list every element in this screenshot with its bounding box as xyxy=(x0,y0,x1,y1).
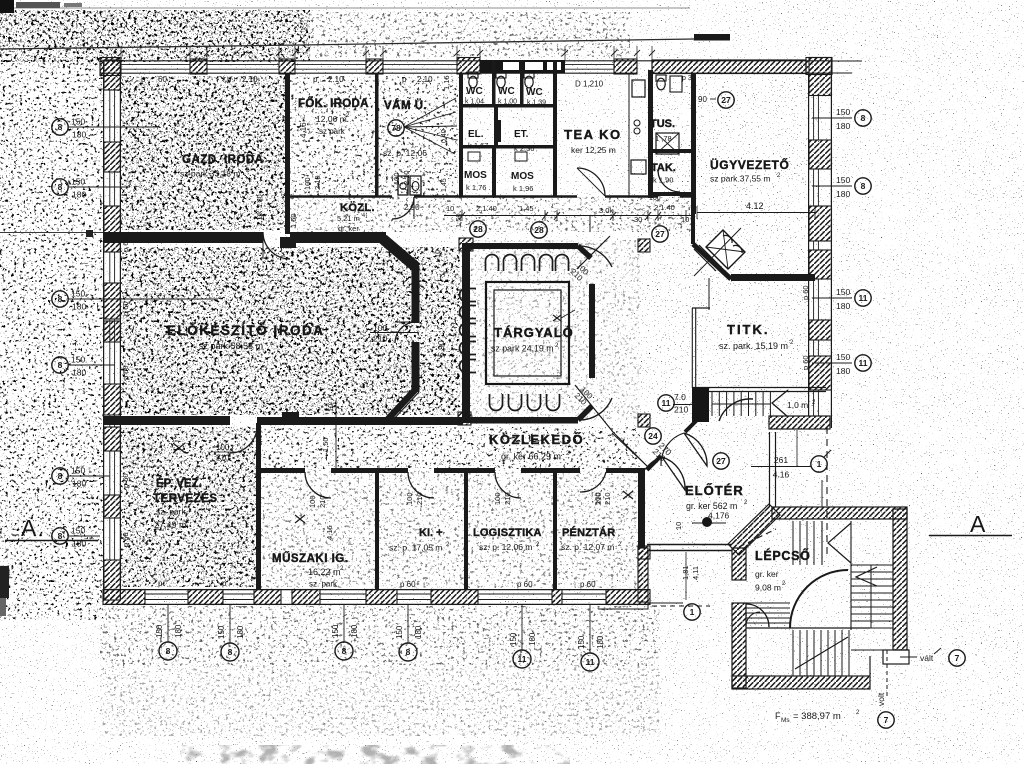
svg-text:sz. park: sz. park xyxy=(156,507,187,517)
svg-text:2,1.40: 2,1.40 xyxy=(476,204,497,213)
svg-text:10: 10 xyxy=(446,204,454,213)
svg-text:11: 11 xyxy=(662,398,671,408)
svg-text:TITK.: TITK. xyxy=(727,322,770,337)
svg-text:10: 10 xyxy=(433,250,442,258)
svg-text:180: 180 xyxy=(836,301,850,311)
svg-text:TÁRGYALÓ: TÁRGYALÓ xyxy=(494,325,574,340)
svg-text:WC: WC xyxy=(526,87,543,98)
svg-text:30: 30 xyxy=(634,215,642,224)
svg-text:sz park: sz park xyxy=(319,127,346,136)
svg-text:ELŐTÉR: ELŐTÉR xyxy=(685,483,744,498)
svg-text:150: 150 xyxy=(836,287,850,297)
svg-text:78: 78 xyxy=(391,123,401,133)
svg-text:GAZD. IRODA: GAZD. IRODA xyxy=(182,154,264,166)
svg-text:150: 150 xyxy=(836,107,850,117)
svg-text:LOGISZTIKA: LOGISZTIKA xyxy=(473,527,542,539)
svg-text:60: 60 xyxy=(158,75,167,84)
svg-text:180: 180 xyxy=(836,121,850,131)
svg-text:4,16: 4,16 xyxy=(299,122,308,138)
svg-text:150: 150 xyxy=(71,177,85,187)
svg-text:sz. p. 12,06 m: sz. p. 12,06 m xyxy=(479,542,532,552)
svg-text:27: 27 xyxy=(716,456,726,466)
svg-text:2.10: 2.10 xyxy=(328,75,344,84)
svg-text:10: 10 xyxy=(674,522,683,530)
svg-text:11: 11 xyxy=(859,358,868,368)
svg-text:210: 210 xyxy=(674,405,688,415)
svg-text:10: 10 xyxy=(433,417,442,425)
svg-text:261: 261 xyxy=(774,455,788,465)
svg-text:p: p xyxy=(402,75,407,84)
svg-text:TEA KO: TEA KO xyxy=(564,127,622,142)
svg-text:10: 10 xyxy=(326,404,335,412)
svg-text:1,45: 1,45 xyxy=(519,204,534,213)
svg-text:4,176: 4,176 xyxy=(708,511,730,521)
svg-text:2,1.40: 2,1.40 xyxy=(654,203,675,212)
svg-text:3.0k: 3.0k xyxy=(599,206,613,215)
svg-text:ÉP. VEZ.: ÉP. VEZ. xyxy=(156,477,202,490)
svg-text:100: 100 xyxy=(405,492,414,505)
svg-text:sz. park: sz. park xyxy=(309,580,338,589)
svg-text:gr. ker 66,29 m: gr. ker 66,29 m xyxy=(501,452,561,462)
svg-text:8: 8 xyxy=(228,647,233,657)
svg-text:9,08 m: 9,08 m xyxy=(755,583,781,593)
svg-text:7.0: 7.0 xyxy=(674,392,686,402)
svg-text:p 60: p 60 xyxy=(121,532,130,547)
svg-text:8: 8 xyxy=(166,646,171,656)
svg-text:ker 12,25 m: ker 12,25 m xyxy=(571,145,616,155)
svg-text:ELŐKÉSZÍTŐ IRODA: ELŐKÉSZÍTŐ IRODA xyxy=(167,323,325,338)
svg-text:100: 100 xyxy=(493,492,502,505)
svg-text:sz. p. 12,07 m: sz. p. 12,07 m xyxy=(561,542,614,552)
svg-text:28: 28 xyxy=(473,224,483,234)
svg-text:180: 180 xyxy=(72,190,86,200)
svg-text:180: 180 xyxy=(836,366,850,376)
svg-text:4: 4 xyxy=(362,213,365,219)
svg-text:MŰSZAKI IG.: MŰSZAKI IG. xyxy=(272,552,348,565)
svg-text:150: 150 xyxy=(155,624,164,638)
svg-text:k 1,00: k 1,00 xyxy=(498,99,517,106)
svg-text:11: 11 xyxy=(518,654,527,664)
svg-text:8: 8 xyxy=(58,531,63,541)
svg-text:2.10: 2.10 xyxy=(402,170,411,185)
svg-text:KÖZLEKEDŐ: KÖZLEKEDŐ xyxy=(489,432,584,447)
svg-text:150: 150 xyxy=(509,632,518,646)
svg-text:150: 150 xyxy=(395,625,404,639)
svg-text:EL.: EL. xyxy=(468,129,484,140)
svg-text:1,16: 1,16 xyxy=(442,75,451,90)
svg-text:180: 180 xyxy=(236,625,245,639)
svg-text:gr. ker 562 m: gr. ker 562 m xyxy=(686,501,737,511)
svg-text:7: 7 xyxy=(884,715,889,725)
svg-text:150: 150 xyxy=(71,289,85,299)
svg-text:16,22 m: 16,22 m xyxy=(308,567,341,577)
svg-text:7: 7 xyxy=(955,653,960,663)
svg-text:p: p xyxy=(313,75,318,84)
svg-text:180: 180 xyxy=(836,189,850,199)
svg-text:KÖZL.: KÖZL. xyxy=(340,201,375,214)
svg-text:p: p xyxy=(222,579,227,588)
svg-text:gr. ker: gr. ker xyxy=(755,569,779,579)
svg-text:MOS: MOS xyxy=(511,171,534,182)
svg-text:2.10: 2.10 xyxy=(242,75,258,84)
svg-text:1,81: 1,81 xyxy=(681,565,690,580)
svg-text:p 60: p 60 xyxy=(121,365,130,380)
svg-text:210: 210 xyxy=(373,334,387,344)
svg-text:150: 150 xyxy=(331,624,340,638)
svg-text:p 60: p 60 xyxy=(801,355,810,370)
svg-text:D 1,210: D 1,210 xyxy=(575,80,604,89)
svg-text:FŐK. IRODA: FŐK. IRODA xyxy=(298,97,369,110)
svg-text:4.12: 4.12 xyxy=(746,201,764,211)
svg-text:sz park 58,58 m: sz park 58,58 m xyxy=(199,341,263,351)
svg-text:180: 180 xyxy=(72,302,86,312)
svg-text:PÉNZTÁR: PÉNZTÁR xyxy=(562,526,615,539)
svg-text:150: 150 xyxy=(217,625,226,639)
svg-text:WC: WC xyxy=(498,86,515,97)
svg-text:TERVEZÉS: TERVEZÉS xyxy=(153,492,218,505)
svg-text:TAK.: TAK. xyxy=(651,162,676,174)
svg-text:27,49 m: 27,49 m xyxy=(154,520,187,530)
svg-text:2.90: 2.90 xyxy=(404,203,420,212)
svg-text:sz park 33,18 m: sz park 33,18 m xyxy=(180,169,240,179)
svg-text:1,50: 1,50 xyxy=(289,213,298,228)
svg-text:1.80: 1.80 xyxy=(257,194,264,208)
svg-text:LÉPCSŐ: LÉPCSŐ xyxy=(755,548,811,563)
svg-text:ET.: ET. xyxy=(514,129,529,140)
svg-text:k 1,76: k 1,76 xyxy=(466,183,486,192)
svg-text:180: 180 xyxy=(596,635,605,649)
svg-text:8: 8 xyxy=(58,122,63,132)
svg-text:p 60: p 60 xyxy=(121,237,130,252)
svg-text:100: 100 xyxy=(392,172,401,185)
svg-text:gr. ker: gr. ker xyxy=(338,224,359,233)
svg-text:8: 8 xyxy=(58,294,63,304)
svg-text:8: 8 xyxy=(58,471,63,481)
svg-text:p 30: p 30 xyxy=(682,75,696,82)
svg-text:5,90: 5,90 xyxy=(436,340,446,357)
svg-text:sz. p. 17,05 m: sz. p. 17,05 m xyxy=(389,543,442,553)
svg-text:28: 28 xyxy=(534,225,544,235)
svg-text:8: 8 xyxy=(58,360,63,370)
svg-text:150: 150 xyxy=(71,355,85,365)
svg-text:150: 150 xyxy=(577,635,586,649)
svg-text:k 1,04: k 1,04 xyxy=(465,99,484,106)
svg-text:210: 210 xyxy=(503,492,512,505)
svg-text:k 1,67: k 1,67 xyxy=(468,141,488,150)
svg-text:180: 180 xyxy=(350,624,359,638)
svg-text:sz. p. 12,06: sz. p. 12,06 xyxy=(383,148,427,158)
svg-text:p 60: p 60 xyxy=(801,285,810,300)
svg-text:8: 8 xyxy=(406,647,411,657)
svg-text:KI. +: KI. + xyxy=(419,527,443,539)
svg-text:p: p xyxy=(227,75,232,84)
svg-text:TUS.: TUS. xyxy=(650,118,675,130)
svg-text:180: 180 xyxy=(72,130,86,140)
svg-text:100: 100 xyxy=(308,495,317,508)
svg-text:k 1,39: k 1,39 xyxy=(527,100,546,107)
svg-text:210: 210 xyxy=(594,492,603,505)
svg-text:10: 10 xyxy=(681,215,689,224)
svg-text:150: 150 xyxy=(836,352,850,362)
svg-text:210: 210 xyxy=(415,492,424,505)
svg-text:2.10: 2.10 xyxy=(417,75,433,84)
svg-text:2.16: 2.16 xyxy=(257,212,264,226)
svg-text:A: A xyxy=(21,515,37,541)
svg-text:k 1,96: k 1,96 xyxy=(513,184,533,193)
svg-text:210: 210 xyxy=(318,495,327,508)
svg-text:sz. park. 15,19 m: sz. park. 15,19 m xyxy=(719,341,788,351)
svg-text:4.16: 4.16 xyxy=(773,470,790,480)
svg-text:p 60: p 60 xyxy=(580,580,596,589)
svg-text:sz park 24,19 m: sz park 24,19 m xyxy=(491,344,554,354)
svg-text:27: 27 xyxy=(721,95,731,105)
svg-text:180: 180 xyxy=(174,624,183,638)
svg-text:27: 27 xyxy=(655,229,665,239)
svg-text:k 2,36: k 2,36 xyxy=(514,144,534,153)
svg-text:vált: vált xyxy=(920,653,934,663)
svg-text:MOS: MOS xyxy=(464,170,487,181)
svg-text:1: 1 xyxy=(817,459,822,469)
svg-text:11: 11 xyxy=(586,657,595,667)
svg-text:k 1,90: k 1,90 xyxy=(653,176,673,185)
svg-text:p: p xyxy=(158,579,163,588)
svg-text:4,16: 4,16 xyxy=(325,525,334,540)
svg-text:100: 100 xyxy=(373,323,387,333)
svg-text:100: 100 xyxy=(216,443,230,452)
svg-text:4,11: 4,11 xyxy=(691,566,700,580)
svg-text:210: 210 xyxy=(603,492,612,505)
svg-text:ÜGYVEZETŐ: ÜGYVEZETŐ xyxy=(710,157,789,172)
svg-text:1,50: 1,50 xyxy=(321,437,330,452)
svg-text:1 ,78: 1 ,78 xyxy=(655,134,672,143)
svg-text:100: 100 xyxy=(649,195,661,202)
svg-text:p 60: p 60 xyxy=(517,580,533,589)
svg-text:8: 8 xyxy=(861,113,866,123)
svg-text:180: 180 xyxy=(72,479,86,489)
svg-text:150: 150 xyxy=(71,117,85,127)
svg-text:11: 11 xyxy=(859,293,868,303)
svg-text:150: 150 xyxy=(71,466,85,476)
svg-text:p: p xyxy=(141,75,146,84)
svg-text:210: 210 xyxy=(216,454,230,463)
svg-text:12,06 m: 12,06 m xyxy=(316,114,347,124)
svg-text:180: 180 xyxy=(528,632,537,646)
svg-text:volt: volt xyxy=(876,692,886,706)
svg-text:VÁM Ü.: VÁM Ü. xyxy=(384,99,427,112)
svg-text:8: 8 xyxy=(58,182,63,192)
svg-text:sz park 37,55 m: sz park 37,55 m xyxy=(710,174,770,184)
svg-text:2.10: 2.10 xyxy=(313,175,322,190)
svg-text:8: 8 xyxy=(861,181,866,191)
svg-text:Ms: Ms xyxy=(781,717,790,724)
svg-text:A: A xyxy=(970,511,986,537)
svg-text:8: 8 xyxy=(342,646,347,656)
svg-text:90: 90 xyxy=(698,95,707,104)
svg-text:5,21 m: 5,21 m xyxy=(337,214,360,223)
svg-text:p 60: p 60 xyxy=(121,301,130,316)
svg-text:150: 150 xyxy=(836,175,850,185)
svg-text:24: 24 xyxy=(648,431,658,441)
svg-text:WC: WC xyxy=(466,86,483,97)
svg-text:0,40: 0,40 xyxy=(441,129,448,143)
svg-text:p 60: p 60 xyxy=(400,580,416,589)
svg-text:= 388,97 m: = 388,97 m xyxy=(793,711,841,722)
svg-text:180: 180 xyxy=(72,368,86,378)
svg-text:p 60: p 60 xyxy=(121,473,130,488)
svg-text:1,45: 1,45 xyxy=(441,178,448,192)
svg-text:1: 1 xyxy=(690,607,695,617)
svg-text:1,0 m: 1,0 m xyxy=(787,400,808,410)
svg-text:100: 100 xyxy=(303,177,312,190)
svg-text:180: 180 xyxy=(414,625,423,639)
svg-text:150: 150 xyxy=(71,526,85,536)
